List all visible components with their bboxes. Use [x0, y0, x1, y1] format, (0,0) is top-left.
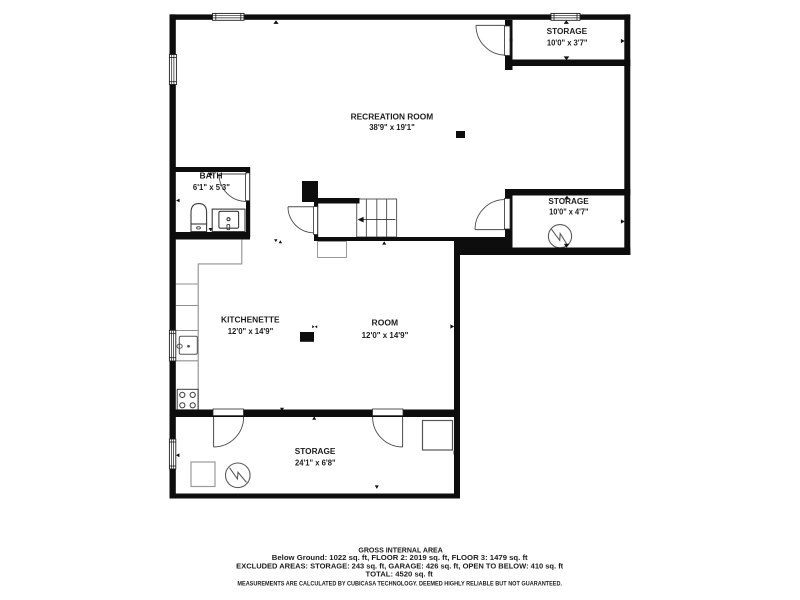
svg-text:12'0" x 14'9": 12'0" x 14'9" [228, 327, 274, 336]
svg-text:STORAGE: STORAGE [548, 197, 589, 206]
svg-text:24'1" x 6'8": 24'1" x 6'8" [295, 458, 336, 467]
svg-text:10'0" x 3'7": 10'0" x 3'7" [547, 39, 588, 48]
svg-text:12'0" x 14'9": 12'0" x 14'9" [362, 331, 409, 340]
svg-text:RECREATION ROOM: RECREATION ROOM [351, 113, 434, 122]
svg-text:10'0" x 4'7": 10'0" x 4'7" [549, 208, 589, 217]
svg-text:6'1" x 5'3": 6'1" x 5'3" [193, 183, 230, 192]
svg-text:38'9" x 19'1": 38'9" x 19'1" [369, 123, 415, 132]
svg-text:BATH: BATH [200, 172, 223, 181]
svg-text:STORAGE: STORAGE [295, 447, 336, 456]
svg-text:TOTAL: 4520 sq. ft: TOTAL: 4520 sq. ft [366, 570, 434, 579]
svg-text:ROOM: ROOM [372, 319, 399, 328]
svg-text:KITCHENETTE: KITCHENETTE [221, 316, 280, 325]
svg-text:MEASUREMENTS ARE CALCULATED BY: MEASUREMENTS ARE CALCULATED BY CUBICASA … [237, 582, 562, 588]
svg-text:STORAGE: STORAGE [547, 27, 588, 36]
